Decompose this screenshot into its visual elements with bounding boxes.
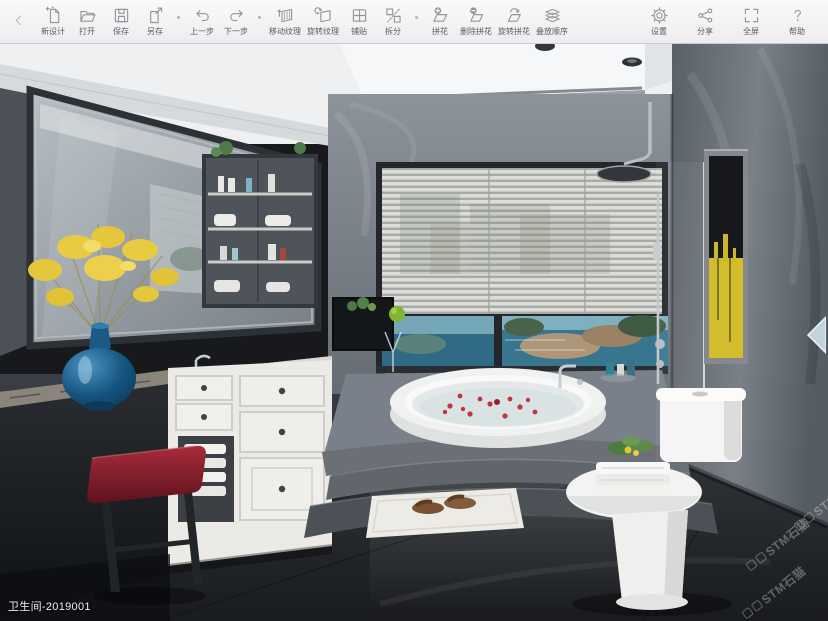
rotate-parquet-label: 旋转拼花 <box>498 27 530 37</box>
help-question-icon <box>787 5 808 26</box>
wall-art <box>704 150 748 364</box>
rotate-texture-button[interactable]: 旋转纹理 <box>304 3 342 37</box>
pave-label: 铺贴 <box>351 27 367 37</box>
toolbar-separator-icon <box>415 16 418 19</box>
system-group: 设置 分享 全屏 帮助 <box>642 3 818 37</box>
delete-parquet-icon <box>466 5 487 26</box>
texture-group: 移动纹理 旋转纹理 铺贴 <box>266 3 410 37</box>
rotate-texture-icon <box>313 5 334 26</box>
stack-order-button[interactable]: 叠放顺序 <box>533 3 571 37</box>
app-window: 新设计 打开 保存 另存 <box>0 0 828 621</box>
parquet-group: 拼花 删除拼花 旋转拼花 <box>423 3 571 37</box>
pave-grid-icon <box>349 5 370 26</box>
history-group: 上一步 下一步 <box>185 3 253 37</box>
design-name-label: 卫生间-2019001 <box>8 598 91 614</box>
split-button[interactable]: 拆分 <box>376 3 410 37</box>
split-icon <box>383 5 404 26</box>
pave-button[interactable]: 铺贴 <box>342 3 376 37</box>
open-button[interactable]: 打开 <box>70 3 104 37</box>
save-label: 保存 <box>113 27 129 37</box>
window <box>376 162 668 374</box>
save-floppy-icon <box>111 5 132 26</box>
wall-niche <box>333 297 393 350</box>
settings-button[interactable]: 设置 <box>642 3 676 37</box>
help-button[interactable]: 帮助 <box>780 3 814 37</box>
move-texture-icon <box>275 5 296 26</box>
redo-button[interactable]: 下一步 <box>219 3 253 37</box>
new-design-label: 新设计 <box>41 27 65 37</box>
fullscreen-label: 全屏 <box>743 27 759 37</box>
design-canvas[interactable]: 卫生间-2019001 STM石猫 STM石猫 STM石猫 <box>0 44 828 621</box>
file-group: 新设计 打开 保存 另存 <box>36 3 172 37</box>
move-texture-button[interactable]: 移动纹理 <box>266 3 304 37</box>
expand-panel-arrow[interactable] <box>806 316 826 354</box>
left-wall <box>0 88 30 356</box>
undo-label: 上一步 <box>190 27 214 37</box>
rotate-parquet-icon <box>504 5 525 26</box>
toolbar-separator-icon <box>258 16 261 19</box>
rotate-parquet-button[interactable]: 旋转拼花 <box>495 3 533 37</box>
split-label: 拆分 <box>385 27 401 37</box>
redo-label: 下一步 <box>224 27 248 37</box>
settings-label: 设置 <box>651 27 667 37</box>
rotate-texture-label: 旋转纹理 <box>307 27 339 37</box>
fullscreen-icon <box>741 5 762 26</box>
back-button[interactable] <box>6 3 32 37</box>
add-parquet-icon <box>430 5 451 26</box>
toolbar-separator-icon <box>177 16 180 19</box>
new-design-icon <box>43 5 64 26</box>
shelf-unit <box>204 141 316 306</box>
parquet-label: 拼花 <box>432 27 448 37</box>
undo-button[interactable]: 上一步 <box>185 3 219 37</box>
delete-parquet-button[interactable]: 删除拼花 <box>457 3 495 37</box>
back-chevron-icon <box>12 10 26 31</box>
share-icon <box>695 5 716 26</box>
save-as-label: 另存 <box>147 27 163 37</box>
stack-order-icon <box>542 5 563 26</box>
new-design-button[interactable]: 新设计 <box>36 3 70 37</box>
save-as-button[interactable]: 另存 <box>138 3 172 37</box>
gear-icon <box>649 5 670 26</box>
save-button[interactable]: 保存 <box>104 3 138 37</box>
help-label: 帮助 <box>789 27 805 37</box>
redo-arrow-icon <box>226 5 247 26</box>
share-button[interactable]: 分享 <box>688 3 722 37</box>
open-folder-icon <box>77 5 98 26</box>
share-label: 分享 <box>697 27 713 37</box>
move-texture-label: 移动纹理 <box>269 27 301 37</box>
open-label: 打开 <box>79 27 95 37</box>
stack-order-label: 叠放顺序 <box>536 27 568 37</box>
delete-parquet-label: 删除拼花 <box>460 27 492 37</box>
fullscreen-button[interactable]: 全屏 <box>734 3 768 37</box>
undo-arrow-icon <box>192 5 213 26</box>
toolbar: 新设计 打开 保存 另存 <box>0 0 828 44</box>
save-as-icon <box>145 5 166 26</box>
left-triangle-icon <box>806 316 826 354</box>
parquet-button[interactable]: 拼花 <box>423 3 457 37</box>
bathroom-render <box>0 44 828 621</box>
